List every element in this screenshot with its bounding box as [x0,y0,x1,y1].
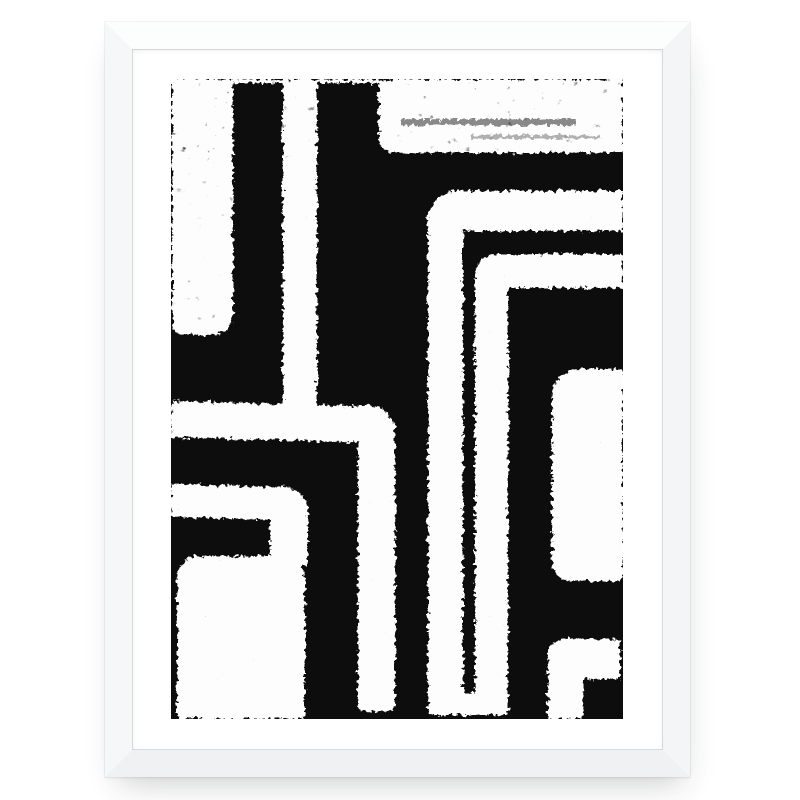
art-top-mottle-overlay [171,79,623,163]
art-left-mottle-overlay [171,79,237,341]
wall-background [0,0,800,800]
frame [105,22,690,777]
artwork-canvas [171,79,623,719]
art-grain-overlay [171,79,623,719]
abstract-artwork [171,79,623,719]
mat [132,49,663,750]
